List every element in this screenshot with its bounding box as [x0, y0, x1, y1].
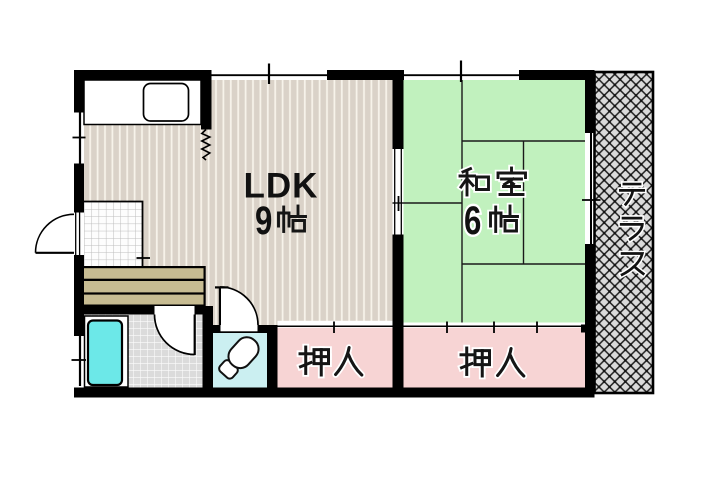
svg-text:6: 6: [464, 198, 481, 243]
svg-text:9: 9: [255, 198, 272, 243]
